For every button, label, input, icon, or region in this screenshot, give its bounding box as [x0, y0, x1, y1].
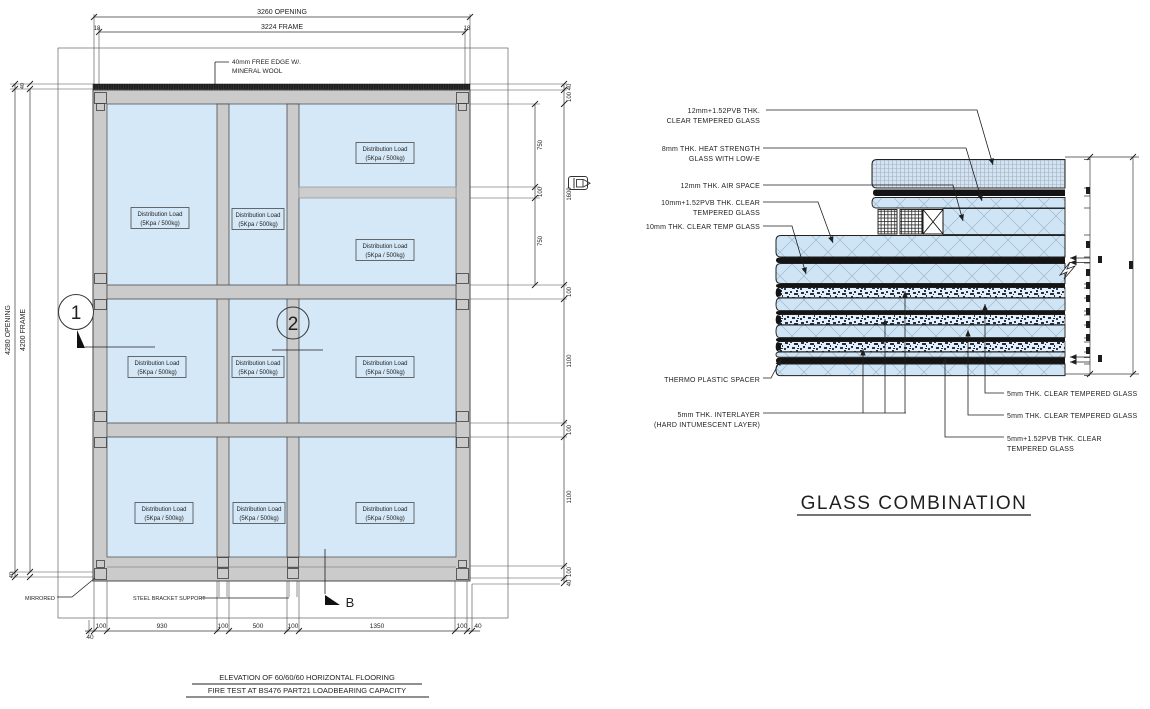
load-label: Distribution Load	[362, 244, 407, 250]
load-label: Distribution Load	[362, 361, 407, 367]
intumescent-interlayer	[776, 288, 1065, 298]
dim-outer: 100	[567, 566, 573, 577]
dim-bottom: 100	[218, 623, 229, 630]
glass-5mm	[776, 352, 1065, 357]
dim-opening-width: 3260 OPENING	[257, 9, 307, 16]
label-12mm: 12mm+1.52PVB THK.	[688, 108, 760, 115]
load-label: (5Kpa / 500kg)	[365, 370, 404, 376]
load-label: (5Kpa / 500kg)	[365, 516, 404, 522]
mineral-wool-strip	[93, 84, 470, 90]
free-edge-note: MINERAL WOOL	[232, 68, 283, 75]
glass-12mm-pvb	[872, 160, 1065, 189]
steel-bracket-note: STEEL BRACKET SUPPORT	[133, 596, 206, 602]
glass-8mm-lowe	[872, 198, 1065, 209]
mirrored-leader	[57, 578, 95, 597]
dim-bottom: 40	[474, 623, 482, 630]
dim-gap: 18	[94, 26, 101, 32]
black-band	[776, 338, 1065, 342]
load-label: (5Kpa / 500kg)	[239, 516, 278, 522]
tiny-dim-values	[1086, 187, 1133, 362]
glass-5mm	[776, 325, 1065, 338]
detail-dim-ticks	[1087, 154, 1136, 377]
label-interlayer: (HARD INTUMESCENT LAYER)	[654, 422, 760, 429]
load-label: (5Kpa / 500kg)	[140, 221, 179, 227]
load-label: (5Kpa / 500kg)	[137, 370, 176, 376]
dim-outer: 1100	[567, 490, 573, 504]
load-label: Distribution Load	[362, 147, 407, 153]
load-label: (5Kpa / 500kg)	[365, 156, 404, 162]
load-label: Distribution Load	[362, 507, 407, 513]
dim-outer: 100	[567, 424, 573, 435]
spacer-cap	[776, 289, 781, 297]
pvb-band	[776, 258, 1065, 264]
glass-5mm-pvb	[776, 364, 1065, 376]
glass-combination-detail: 12mm+1.52PVB THK. CLEAR TEMPERED GLASS 8…	[646, 108, 1139, 515]
dim-bottom: 930	[157, 623, 168, 630]
spacer-cap	[776, 343, 781, 351]
leader-12mm	[766, 110, 993, 165]
load-label: (5Kpa / 500kg)	[238, 370, 277, 376]
glass-5mm	[776, 298, 1065, 311]
label-5mm-1: 5mm THK. CLEAR TEMPERED GLASS	[1007, 391, 1138, 398]
label-12mm: CLEAR TEMPERED GLASS	[667, 118, 760, 125]
label-5mm-pvb: TEMPERED GLASS	[1007, 446, 1074, 453]
dim-bottom: 40	[86, 634, 94, 641]
label-10mm-pvb: TEMPERED GLASS	[693, 210, 760, 217]
glass-area	[107, 104, 456, 557]
dim-bottom: 500	[253, 623, 264, 630]
label-airspace: 12mm THK. AIR SPACE	[681, 183, 761, 190]
dim-gap: 40	[9, 572, 15, 578]
free-edge-note: 40mm FREE EDGE W/.	[232, 59, 301, 66]
drawing-title-line1: ELEVATION OF 60/60/60 HORIZONTAL FLOORIN…	[219, 673, 395, 682]
drawing-title-line2: FIRE TEST AT BS476 PART21 LOADBEARING CA…	[208, 686, 406, 695]
detail-marker-1-number: 1	[71, 303, 82, 324]
detail-dim-lines	[1065, 157, 1139, 376]
black-band	[776, 311, 1065, 315]
drawing-title: ELEVATION OF 60/60/60 HORIZONTAL FLOORIN…	[186, 673, 429, 697]
glass-10mm-clear	[776, 264, 1065, 284]
spacer-block	[878, 210, 897, 235]
detail-title: GLASS COMBINATION	[801, 493, 1028, 514]
label-8mm: 8mm THK. HEAT STRENGTH	[662, 146, 760, 153]
label-5mm-2: 5mm THK. CLEAR TEMPERED GLASS	[1007, 413, 1138, 420]
dim-outer: 100	[567, 286, 573, 297]
mullion-1	[217, 104, 229, 557]
dim-outer: 1100	[567, 354, 573, 368]
spacer-cap	[776, 316, 781, 324]
load-label: (5Kpa / 500kg)	[365, 253, 404, 259]
dim-outer: 100	[567, 91, 573, 102]
cad-drawing-sheet: Distribution Load (5Kpa / 500kg) Distrib…	[0, 0, 1150, 709]
section-flag-icon	[77, 330, 85, 348]
dim-bottom: 100	[288, 623, 299, 630]
dim-gap: 40	[20, 83, 26, 89]
dim-inner: 750	[538, 235, 544, 246]
load-label: Distribution Load	[235, 213, 280, 219]
label-10mm-pvb: 10mm+1.52PVB THK. CLEAR	[661, 200, 760, 207]
intumescent-interlayer	[776, 315, 1065, 325]
label-5mm-pvb: 5mm+1.52PVB THK. CLEAR	[1007, 436, 1102, 443]
dim-outer: 40	[567, 83, 573, 90]
panel-divider	[299, 187, 456, 198]
load-label: Distribution Load	[141, 507, 186, 513]
dim-inner: 750	[538, 139, 544, 150]
air-space-region	[943, 209, 1065, 235]
dim-frame-height: 4200 FRAME	[20, 309, 27, 351]
pvb-band	[873, 190, 1065, 197]
dim-bottom: 100	[96, 623, 107, 630]
rail-1	[107, 285, 456, 299]
label-interlayer: 5mm THK. INTERLAYER	[678, 412, 761, 419]
label-10mm-clear: 10mm THK. CLEAR TEMP GLASS	[646, 224, 760, 231]
load-label: Distribution Load	[236, 507, 281, 513]
dim-outer: 40	[567, 579, 573, 586]
glass-10mm-pvb	[776, 236, 1065, 258]
section-arrow-icon	[325, 595, 340, 605]
dim-outer: 1600	[567, 187, 573, 201]
spacer-x-box	[923, 210, 943, 235]
dim-gap: 18	[464, 26, 471, 32]
dim-bottom: 1350	[370, 623, 385, 630]
load-label: Distribution Load	[235, 361, 280, 367]
intumescent-interlayer	[776, 342, 1065, 352]
spacer-block	[900, 210, 922, 235]
dim-frame-width: 3224 FRAME	[261, 24, 303, 31]
load-label: Distribution Load	[137, 212, 182, 218]
load-label: (5Kpa / 500kg)	[238, 222, 277, 228]
load-label: (5Kpa / 500kg)	[144, 516, 183, 522]
label-8mm: GLASS WITH LOW-E	[689, 156, 760, 163]
section-letter: B	[346, 595, 355, 610]
pvb-band	[776, 358, 1065, 364]
dim-inner: 100	[538, 186, 544, 197]
dim-opening-height: 4280 OPENING	[5, 305, 12, 355]
free-edge-leader	[215, 62, 229, 84]
detail-marker-2-number: 2	[288, 314, 299, 335]
mirrored-note: MIRRORED	[25, 596, 55, 602]
rail-2	[107, 423, 456, 437]
load-label: Distribution Load	[134, 361, 179, 367]
black-band	[776, 284, 1065, 288]
label-thermo-spacer: THERMO PLASTIC SPACER	[664, 377, 760, 384]
drawing-canvas: Distribution Load (5Kpa / 500kg) Distrib…	[0, 0, 1150, 709]
dim-bottom: 100	[457, 623, 468, 630]
elevation-view: Distribution Load (5Kpa / 500kg) Distrib…	[5, 9, 590, 641]
